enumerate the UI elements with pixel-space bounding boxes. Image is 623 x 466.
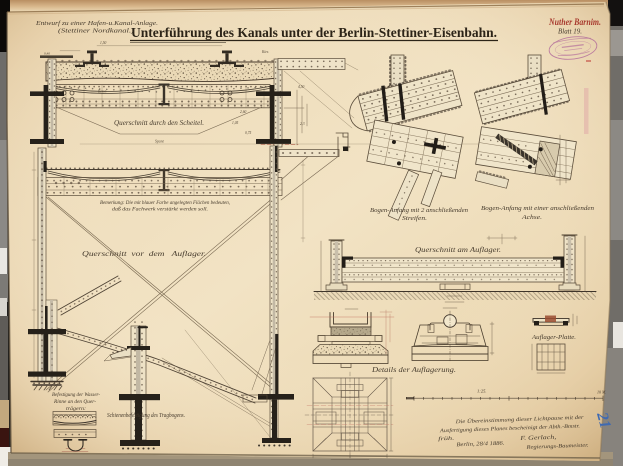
svg-text:Querschnitt durch den Scheitel: Querschnitt durch den Scheitel. xyxy=(114,118,204,127)
svg-text:Unterführung des Kanals unter: Unterführung des Kanals unter der Berlin… xyxy=(131,26,497,41)
svg-text:Blatt 19.: Blatt 19. xyxy=(558,29,582,36)
svg-text:Schienenbefestigung des Tragbo: Schienenbefestigung des Tragbogens. xyxy=(107,412,185,419)
svg-text:Spant: Spant xyxy=(155,140,165,144)
svg-text:Streifen.: Streifen. xyxy=(402,215,427,222)
svg-text:Achse.: Achse. xyxy=(521,214,542,221)
svg-text:früh.: früh. xyxy=(438,435,454,443)
svg-text:Bogen-Anfang mit einer anschli: Bogen-Anfang mit einer anschließenden xyxy=(481,205,594,212)
svg-text:1:25.: 1:25. xyxy=(477,389,487,394)
svg-text:Beton: Beton xyxy=(98,90,107,94)
svg-text:daß das Fachwerk verstärkt wer: daß das Fachwerk verstärkt werden soll. xyxy=(112,208,208,213)
svg-text:Rinne an den Quer-: Rinne an den Quer- xyxy=(53,399,96,405)
svg-text:Kies: Kies xyxy=(261,50,269,54)
svg-text:Nuther Barnim.: Nuther Barnim. xyxy=(548,18,601,28)
svg-text:trägern:: trägern: xyxy=(66,406,86,412)
svg-text:Befestigung der Wasser-: Befestigung der Wasser- xyxy=(52,391,100,398)
svg-text:Querschnitt vor dem Auflag: Querschnitt vor dem Auflager. xyxy=(82,249,206,258)
svg-text:Details der Auflagerung.: Details der Auflagerung. xyxy=(371,366,456,374)
svg-text:Querschnitt am Auflager.: Querschnitt am Auflager. xyxy=(415,245,501,254)
svg-text:Bemerkung: Die mit blauer Farb: Bemerkung: Die mit blauer Farbe angelegt… xyxy=(100,201,230,206)
svg-text:10 M.: 10 M. xyxy=(597,390,606,395)
svg-text:Bogen-Anfang mit 2 anschließen: Bogen-Anfang mit 2 anschließenden xyxy=(370,207,468,214)
svg-text:(Stettiner Nordkanal.): (Stettiner Nordkanal.) xyxy=(58,28,134,35)
svg-text:Auflager-Platte.: Auflager-Platte. xyxy=(531,334,576,341)
